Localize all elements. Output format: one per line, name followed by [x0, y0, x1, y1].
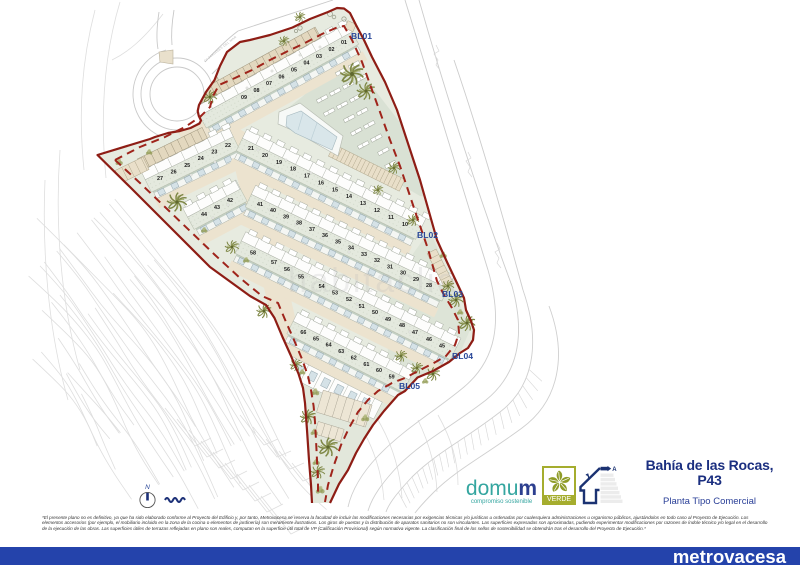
svg-text:19: 19 [276, 160, 282, 166]
svg-text:61: 61 [363, 362, 369, 368]
svg-text:04: 04 [304, 61, 310, 67]
svg-text:53: 53 [332, 291, 338, 297]
svg-text:47: 47 [412, 330, 418, 336]
svg-text:20: 20 [262, 153, 268, 159]
svg-text:23: 23 [211, 150, 217, 156]
svg-text:BL05: BL05 [399, 381, 420, 391]
svg-text:06: 06 [279, 74, 285, 80]
svg-text:62: 62 [351, 356, 357, 362]
svg-text:11: 11 [388, 215, 394, 221]
svg-text:17: 17 [304, 174, 310, 180]
svg-text:46: 46 [426, 337, 432, 343]
svg-text:02: 02 [329, 47, 335, 53]
svg-text:05: 05 [291, 68, 297, 74]
svg-text:37: 37 [309, 227, 315, 233]
svg-text:43: 43 [214, 205, 220, 211]
svg-text:66: 66 [300, 330, 306, 336]
svg-text:BL04: BL04 [452, 351, 473, 361]
svg-text:39: 39 [283, 215, 289, 221]
svg-text:16: 16 [318, 180, 324, 186]
svg-text:51: 51 [359, 304, 365, 310]
svg-text:03: 03 [316, 54, 322, 60]
svg-text:44: 44 [201, 212, 207, 218]
svg-text:40: 40 [270, 208, 276, 214]
svg-text:31: 31 [387, 264, 393, 270]
svg-text:60: 60 [376, 368, 382, 374]
svg-text:habitaclia: habitaclia [288, 262, 456, 300]
svg-text:36: 36 [322, 233, 328, 239]
svg-text:38: 38 [296, 221, 302, 227]
svg-text:54: 54 [319, 284, 325, 290]
svg-text:29: 29 [413, 277, 419, 283]
svg-text:01: 01 [341, 40, 347, 46]
svg-text:56: 56 [284, 267, 290, 273]
svg-text:64: 64 [326, 343, 332, 349]
svg-text:63: 63 [338, 349, 344, 355]
svg-text:27: 27 [157, 176, 163, 182]
svg-text:10: 10 [402, 222, 408, 228]
svg-text:33: 33 [361, 252, 367, 258]
svg-text:07: 07 [266, 81, 272, 87]
svg-text:32: 32 [374, 258, 380, 264]
svg-text:09: 09 [241, 95, 247, 101]
svg-text:52: 52 [346, 297, 352, 303]
svg-text:57: 57 [271, 260, 277, 266]
svg-text:45: 45 [439, 344, 445, 350]
svg-text:BL02: BL02 [417, 230, 438, 240]
svg-text:28: 28 [426, 283, 432, 289]
svg-text:12: 12 [374, 208, 380, 214]
svg-text:34: 34 [348, 246, 354, 252]
svg-text:13: 13 [360, 201, 366, 207]
svg-text:55: 55 [298, 275, 304, 281]
svg-text:35: 35 [335, 239, 341, 245]
svg-text:30: 30 [400, 271, 406, 277]
svg-text:22: 22 [225, 143, 231, 149]
svg-text:48: 48 [399, 323, 405, 329]
svg-text:49: 49 [385, 317, 391, 323]
svg-text:26: 26 [171, 169, 177, 175]
svg-text:18: 18 [290, 167, 296, 173]
svg-text:BL03: BL03 [442, 289, 463, 299]
svg-text:50: 50 [372, 310, 378, 316]
svg-text:24: 24 [198, 156, 204, 162]
svg-text:BL01: BL01 [351, 31, 372, 41]
svg-text:21: 21 [248, 146, 254, 152]
svg-text:N: N [145, 484, 150, 491]
svg-text:65: 65 [313, 336, 319, 342]
svg-text:25: 25 [184, 163, 190, 169]
svg-text:41: 41 [257, 202, 263, 208]
svg-text:14: 14 [346, 194, 352, 200]
svg-text:58: 58 [250, 251, 256, 257]
svg-text:15: 15 [332, 187, 338, 193]
svg-text:08: 08 [254, 88, 260, 94]
svg-text:59: 59 [389, 375, 395, 381]
svg-text:42: 42 [227, 198, 233, 204]
